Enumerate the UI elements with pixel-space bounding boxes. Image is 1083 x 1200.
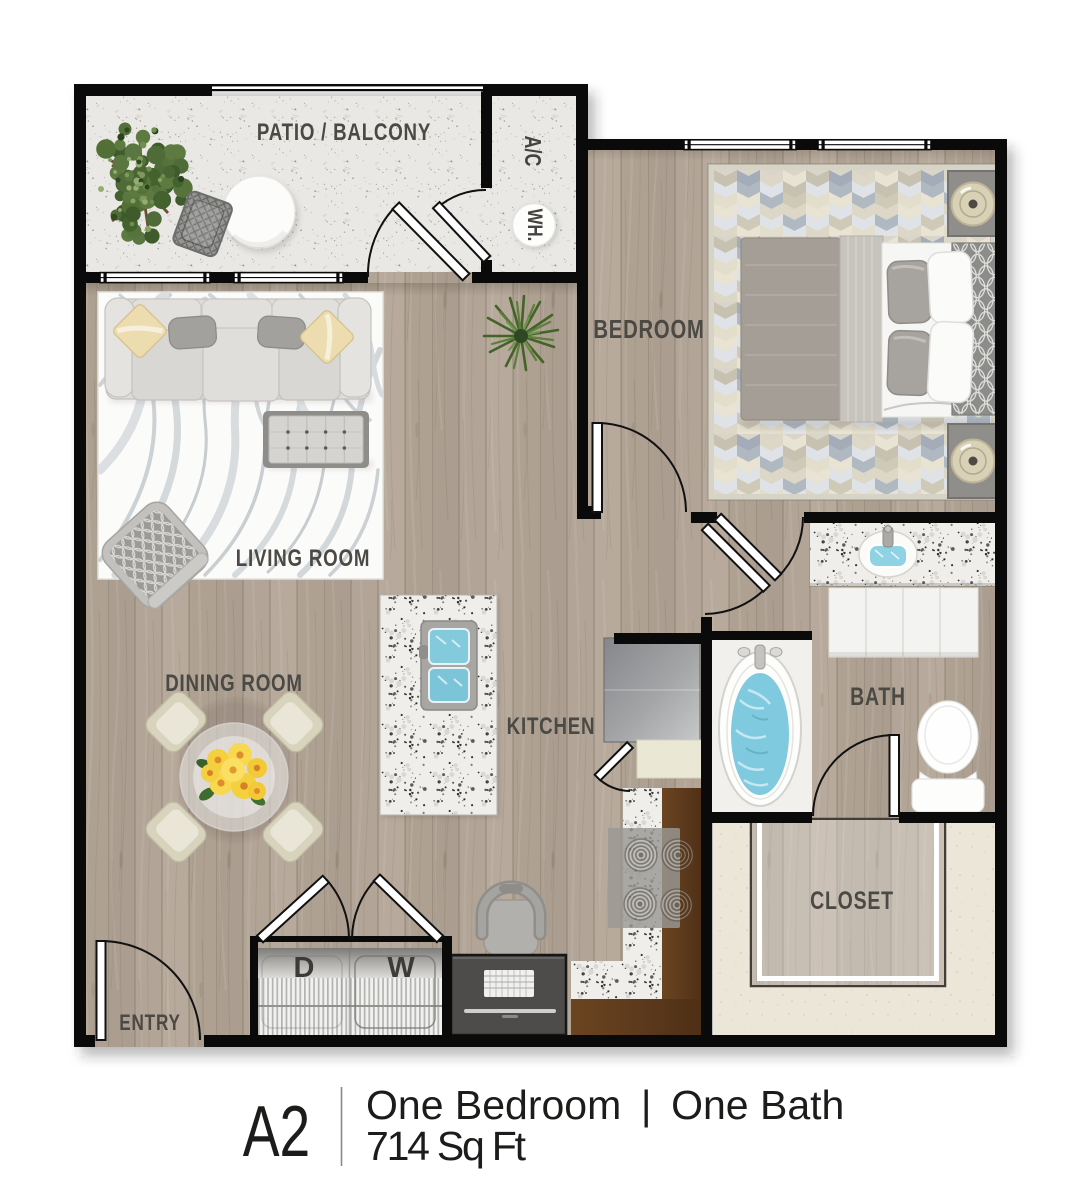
svg-text:WH.: WH. (522, 209, 545, 242)
svg-text:CLOSET: CLOSET (810, 887, 894, 915)
svg-text:DINING ROOM: DINING ROOM (165, 670, 303, 697)
svg-text:BATH: BATH (850, 683, 906, 711)
svg-text:D: D (294, 952, 315, 984)
svg-text:One Bedroom | One Bath: One Bedroom | One Bath (366, 1082, 844, 1128)
svg-text:ENTRY: ENTRY (119, 1011, 180, 1036)
svg-text:714 Sq Ft: 714 Sq Ft (366, 1123, 527, 1169)
svg-text:LIVING ROOM: LIVING ROOM (236, 545, 370, 572)
svg-text:PATIO / BALCONY: PATIO / BALCONY (257, 119, 431, 146)
svg-text:KITCHEN: KITCHEN (507, 713, 596, 740)
svg-text:W: W (387, 952, 415, 984)
svg-text:A/C: A/C (519, 136, 545, 167)
svg-text:A2: A2 (243, 1091, 311, 1172)
svg-text:BEDROOM: BEDROOM (593, 315, 704, 344)
